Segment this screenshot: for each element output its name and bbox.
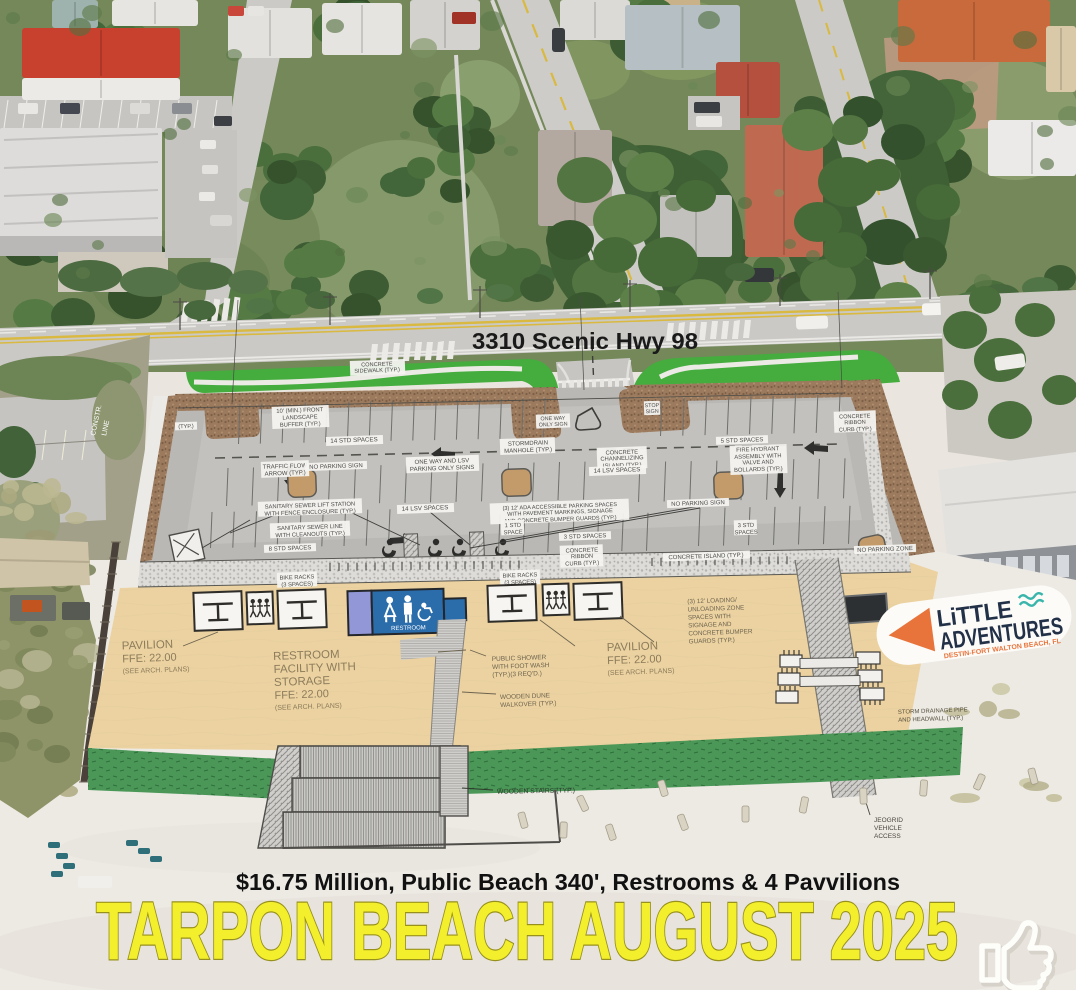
- svg-text:SPACE: SPACE: [503, 530, 523, 537]
- svg-text:PAVILION: PAVILION: [607, 640, 659, 654]
- svg-text:RESTROOM: RESTROOM: [273, 649, 340, 663]
- svg-text:SIGN: SIGN: [645, 409, 658, 415]
- svg-text:CURB (TYP.): CURB (TYP.): [565, 560, 599, 567]
- svg-text:TARPON BEACH AUGUST 2025: TARPON BEACH AUGUST 2025: [96, 886, 958, 977]
- svg-text:WOODEN STAIRS (TYP.): WOODEN STAIRS (TYP.): [497, 787, 575, 795]
- svg-text:FFE: 22.00: FFE: 22.00: [607, 653, 662, 667]
- svg-text:FFE: 22.00: FFE: 22.00: [274, 688, 329, 702]
- svg-text:CURB (TYP.): CURB (TYP.): [839, 426, 872, 433]
- svg-text:BIKE RACKS: BIKE RACKS: [502, 572, 537, 579]
- svg-text:FFE: 22.00: FFE: 22.00: [122, 652, 177, 666]
- svg-text:BIKE RACKS: BIKE RACKS: [279, 574, 314, 581]
- svg-text:(TYP.): (TYP.): [178, 424, 194, 431]
- svg-text:VEHICLE: VEHICLE: [874, 825, 902, 832]
- svg-text:ONLY SIGN: ONLY SIGN: [539, 421, 568, 428]
- svg-text:RIBBON: RIBBON: [844, 420, 866, 427]
- svg-text:ACCESS: ACCESS: [874, 833, 901, 840]
- svg-text:3310 Scenic Hwy 98: 3310 Scenic Hwy 98: [472, 328, 698, 354]
- svg-text:(3 SPACES): (3 SPACES): [281, 581, 313, 588]
- svg-text:RESTROOM: RESTROOM: [391, 625, 426, 632]
- svg-text:RIBBON: RIBBON: [571, 554, 593, 561]
- svg-text:PAVILION: PAVILION: [122, 639, 174, 653]
- svg-text:STORAGE: STORAGE: [274, 675, 331, 689]
- svg-text:LANDSCAPE: LANDSCAPE: [282, 414, 317, 421]
- svg-text:1 STD: 1 STD: [505, 523, 522, 530]
- svg-text:SPACES: SPACES: [735, 530, 758, 537]
- svg-text:JEOGRID: JEOGRID: [874, 817, 903, 824]
- svg-text:3 STD: 3 STD: [738, 523, 755, 530]
- svg-text:VALVE AND: VALVE AND: [742, 459, 774, 466]
